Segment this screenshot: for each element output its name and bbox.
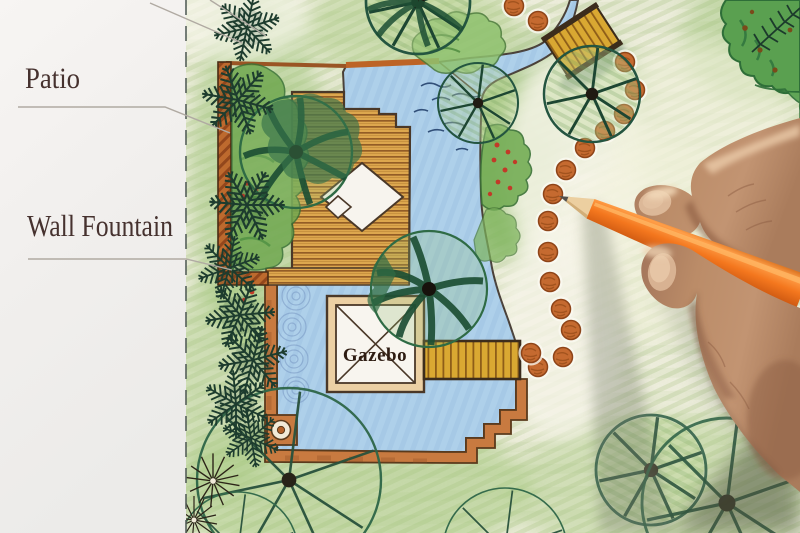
svg-text:Patio: Patio [25,62,80,95]
svg-text:Gazebo: Gazebo [343,345,407,366]
svg-text:Wall Fountain: Wall Fountain [27,208,173,243]
